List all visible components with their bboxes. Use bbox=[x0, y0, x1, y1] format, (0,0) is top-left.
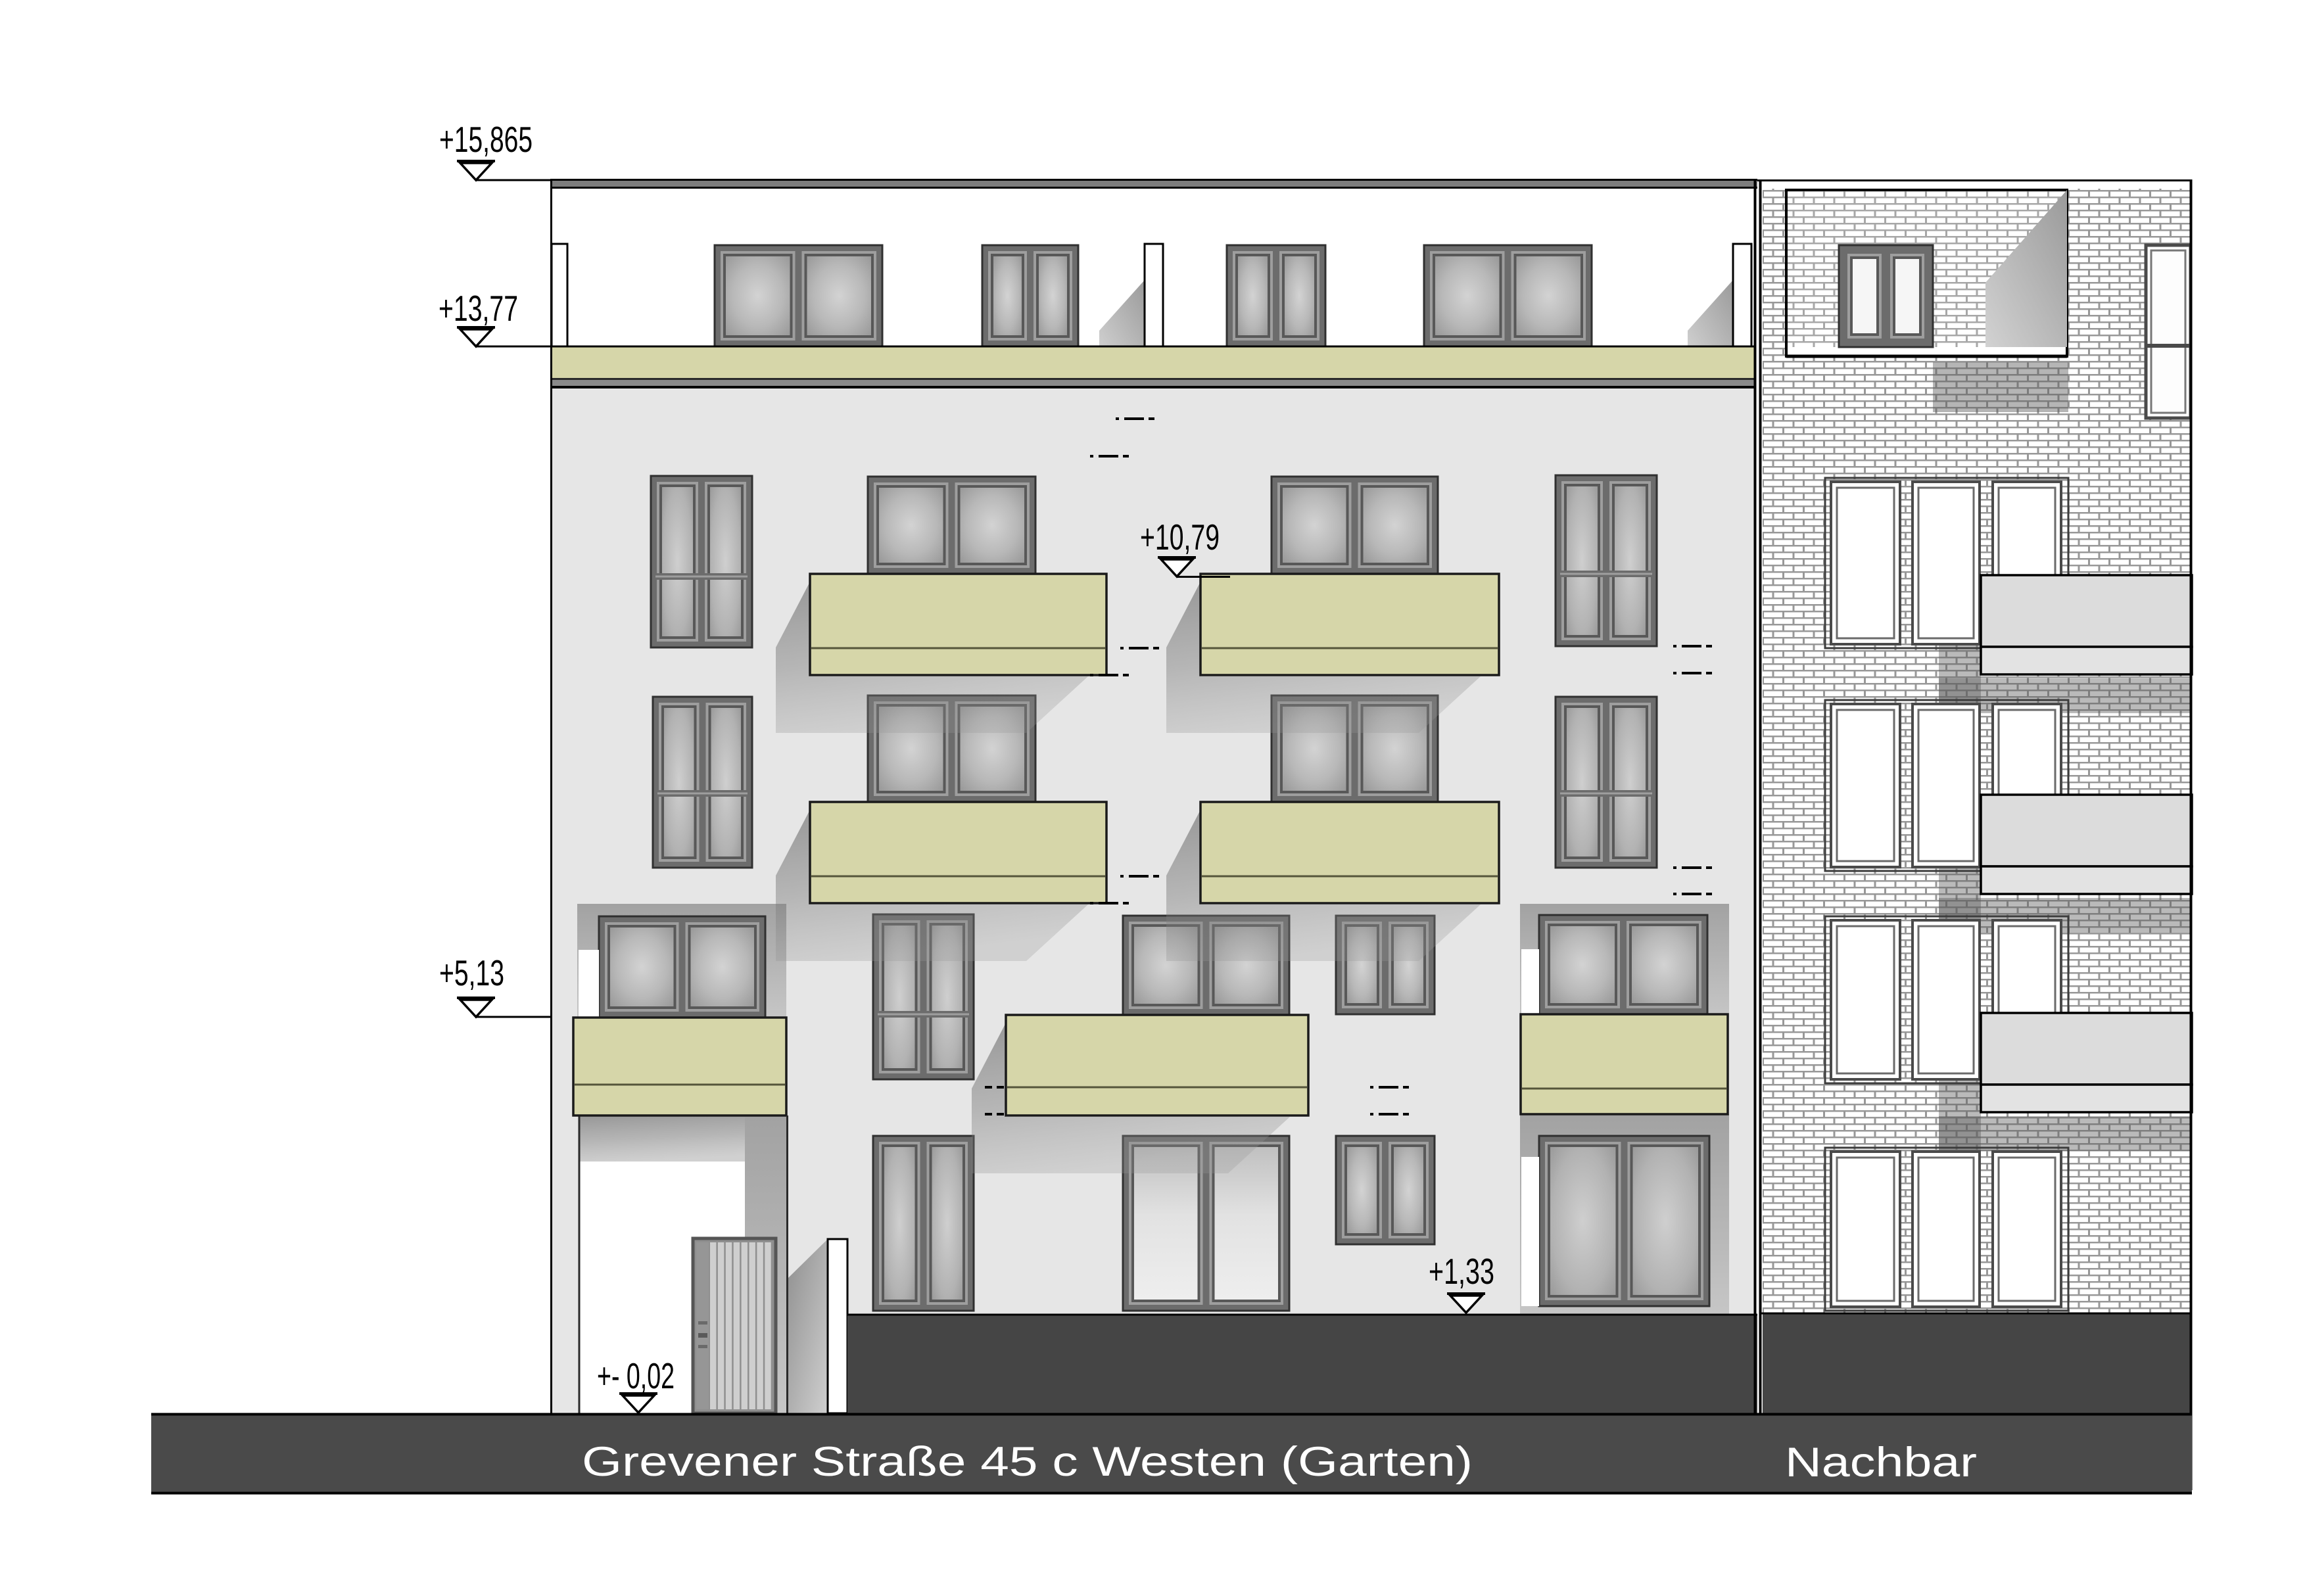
svg-text:+13,77: +13,77 bbox=[439, 288, 518, 329]
svg-text:+1,33: +1,33 bbox=[1429, 1251, 1494, 1292]
svg-text:Grevener Straße 45 c Westen (G: Grevener Straße 45 c Westen (Garten) bbox=[582, 1439, 1473, 1485]
svg-text:+15,865: +15,865 bbox=[439, 119, 533, 160]
svg-text:+- 0,02: +- 0,02 bbox=[597, 1355, 675, 1396]
svg-text:+5,13: +5,13 bbox=[439, 952, 504, 993]
svg-text:+10,79: +10,79 bbox=[1140, 517, 1220, 557]
svg-text:Nachbar: Nachbar bbox=[1785, 1440, 1977, 1486]
